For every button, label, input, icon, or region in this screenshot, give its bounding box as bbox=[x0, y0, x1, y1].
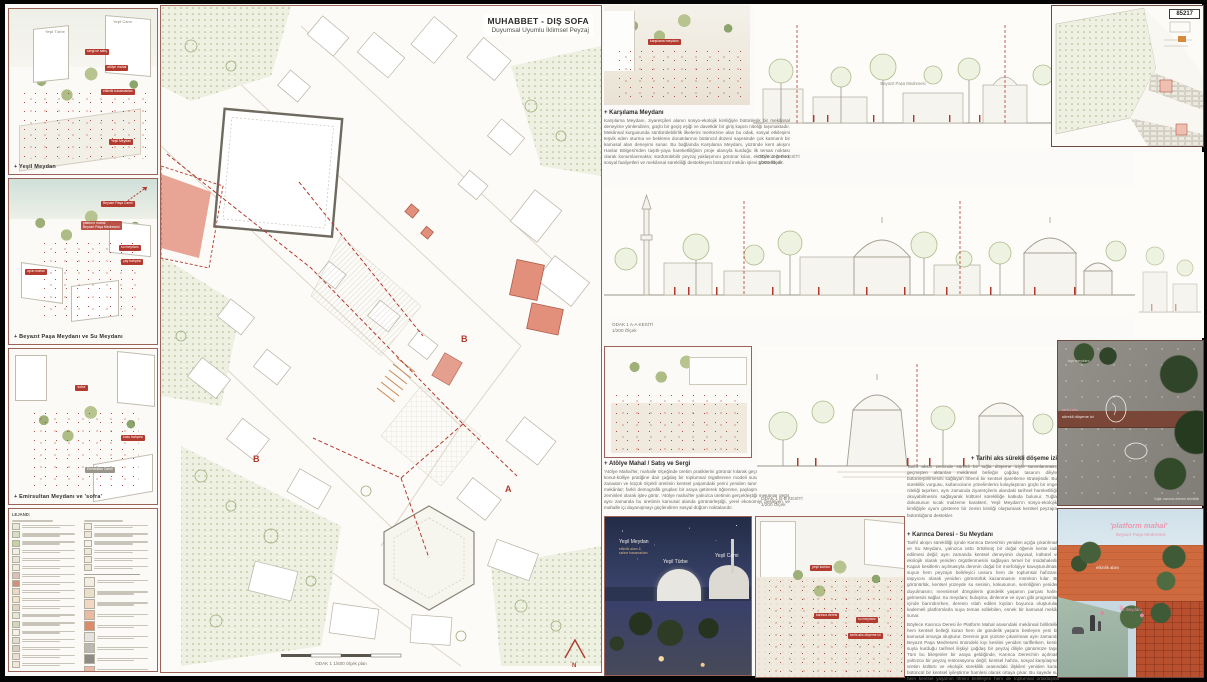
cut-letter-a: A bbox=[505, 484, 512, 494]
text-body: Tarihî akışın sürekliliği içinde Karınca… bbox=[907, 540, 1059, 619]
legend-row bbox=[12, 621, 81, 628]
legend-row bbox=[84, 666, 154, 672]
tag-karsilama: karşılama meydanı bbox=[648, 39, 681, 45]
text-body2: Böylece Karınca Deresi ile Platform Maha… bbox=[907, 622, 1059, 682]
tag-cami: Beyazıt Paşa Camii bbox=[101, 201, 135, 207]
tag-koku-bahcesi: koku bahçesi bbox=[121, 435, 145, 441]
text-body: Tarihi aksın zeminde sürekli bir tuğla d… bbox=[907, 464, 1057, 519]
legend-row bbox=[84, 577, 154, 587]
panel-caption: + Yeşil Meydan bbox=[14, 164, 56, 170]
render-night-yesil-meydan: Yeşil Meydan etkinlik alanı & sahne basa… bbox=[604, 516, 752, 676]
tag-su-meydani: su meydanı bbox=[119, 245, 141, 251]
text-heading: + Karınca Deresi - Su Meydanı bbox=[907, 532, 1059, 538]
render-atolye bbox=[604, 346, 752, 458]
text-karinca-deresi: + Karınca Deresi - Su Meydanı Tarihî akı… bbox=[907, 532, 1059, 678]
pavement-label-4: tuğla: zamana direnen süreklilik bbox=[1154, 497, 1199, 501]
text-heading: + Karşılama Meydanı bbox=[604, 110, 790, 116]
legend-row bbox=[12, 629, 81, 636]
render-street-axon: yeşil koridor karınca deresi su meydanı … bbox=[755, 516, 905, 678]
tag-sofra: 'sofra' bbox=[75, 385, 88, 391]
board-subtitle: Duyumsal Uyumlu İklimsel Peyzaj bbox=[487, 27, 589, 34]
tag-tarihi-aks: tarihi aks döşeme izi bbox=[848, 633, 883, 639]
legend-row bbox=[12, 637, 81, 644]
legend-row bbox=[12, 556, 81, 563]
legend-row bbox=[12, 564, 81, 571]
panel-beyazit-pasa: Beyazıt Paşa Camii platform mahal Beyazı… bbox=[8, 178, 158, 345]
legend-row bbox=[84, 548, 154, 555]
tag-karinca-deresi: karınca deresi bbox=[814, 613, 839, 619]
legend-row bbox=[84, 643, 154, 653]
legend-row bbox=[12, 523, 81, 530]
tree-canopy-2 bbox=[1066, 343, 1126, 369]
chalk-sketches bbox=[1098, 389, 1158, 469]
plan-scale-note: ODAK 1 1/500 ölçek plan bbox=[315, 661, 367, 666]
legend-row bbox=[84, 632, 154, 642]
platform-subtitle: Beyazıt Paşa Medresesi bbox=[1116, 532, 1166, 537]
medrese-note: Beyazıt Paşa Medresesi bbox=[880, 81, 925, 86]
text-heading: + Tarihi aks sürekli döşeme izi bbox=[907, 456, 1057, 462]
person-silhouette bbox=[1090, 615, 1095, 631]
title-block: MUHABBET - DIŞ SOFA Duyumsal Uyumlu İkli… bbox=[483, 14, 593, 36]
board-paper: Yeşil Türbe Yeşil Cami sergi ve satış at… bbox=[5, 4, 1202, 676]
svg-text:N: N bbox=[572, 663, 576, 669]
presentation-board: Yeşil Türbe Yeşil Cami sergi ve satış at… bbox=[0, 0, 1207, 682]
odak1aa-label: ODAK 1 A-A KESİTİ 1/200 Ölçek bbox=[612, 322, 653, 334]
night-ground-trees bbox=[605, 601, 752, 676]
section-odak1-aa bbox=[604, 187, 1136, 319]
platform-label-etkinlik: etkinlik alanı bbox=[1096, 565, 1119, 570]
night-meydan-sub: etkinlik alanı & sahne basamakları bbox=[619, 547, 648, 556]
tag-atolye: atölye mahal bbox=[105, 65, 128, 71]
cami-dome bbox=[709, 565, 749, 599]
photo-pavement: kıyı meydanı tarihi aks sürekli döşeme i… bbox=[1057, 340, 1204, 506]
legend-row bbox=[12, 661, 81, 668]
legend-row bbox=[84, 654, 154, 664]
pavement-label-3: sürekli döşeme izi bbox=[1062, 414, 1094, 419]
legend-row bbox=[12, 588, 81, 595]
pavement-label-1: kıyı meydanı bbox=[1068, 359, 1090, 363]
panel-caption: + Emirsultan Meydanı ve 'sofra' bbox=[14, 494, 102, 500]
legend-row bbox=[12, 540, 81, 547]
tag-platform-mahal: platform mahal Beyazıt Paşa Medresesi bbox=[81, 221, 122, 230]
legend-row bbox=[12, 531, 81, 538]
photo-tree bbox=[1154, 539, 1194, 599]
legend-left-table bbox=[12, 519, 81, 672]
legend-row bbox=[84, 531, 154, 538]
master-plan: B B A ODAK 1 1/500 ölçek plan N MUHABBET… bbox=[160, 5, 602, 673]
legend-row bbox=[84, 523, 154, 530]
elevation-odak2: Beyazıt Paşa Medresesi bbox=[753, 5, 1057, 151]
board-title: MUHABBET - DIŞ SOFA bbox=[487, 16, 589, 26]
photo-tree-2 bbox=[1068, 535, 1112, 579]
panel-yesil-meydan: Yeşil Türbe Yeşil Cami sergi ve satış at… bbox=[8, 8, 158, 175]
night-turbe-label: Yeşil Türbe bbox=[663, 559, 688, 565]
legend-row bbox=[84, 599, 154, 609]
tag-yesil-meydan: Yeşil Meydan bbox=[109, 139, 133, 145]
legend-row bbox=[12, 612, 81, 619]
tag-cay-bahcesi: çay bahçesi bbox=[121, 259, 143, 265]
tag-emirsultan-camii: Emirsultan Camii bbox=[85, 467, 115, 473]
master-plan-drawing: B B A ODAK 1 1/500 ölçek plan N bbox=[161, 6, 601, 672]
legend-row bbox=[84, 610, 154, 620]
cami-label: Yeşil Cami bbox=[113, 19, 132, 24]
legend-row bbox=[12, 604, 81, 611]
tag-su-meydani2: su meydanı bbox=[856, 617, 878, 623]
sheet-id: 85217 bbox=[1169, 9, 1200, 19]
child-silhouette bbox=[1098, 621, 1101, 631]
legend-row bbox=[12, 580, 81, 587]
platform-label-su: su meydanı bbox=[1120, 607, 1142, 612]
legend-panel: LEJAND: bbox=[8, 508, 158, 672]
text-karsilama: + Karşılama Meydanı Karşılama Meydanı, z… bbox=[604, 110, 790, 186]
crowd-dots bbox=[29, 409, 139, 489]
crowd-dots bbox=[19, 89, 149, 159]
legend-row bbox=[84, 556, 154, 563]
elevation-right-strip bbox=[1135, 152, 1204, 338]
render-karsilama: karşılama meydanı bbox=[604, 5, 750, 105]
legend-row bbox=[12, 596, 81, 603]
dog-silhouette bbox=[1072, 627, 1084, 634]
legend-row bbox=[12, 645, 81, 652]
text-body: Karşılama Meydanı, ziyaretçileri alanın … bbox=[604, 118, 790, 167]
pavement-label-2: tarihi aks bbox=[1062, 407, 1078, 412]
night-meydan-label: Yeşil Meydan bbox=[619, 539, 649, 545]
detail-plan-topright: 85217 bbox=[1051, 5, 1204, 147]
turbe-label: Yeşil Türbe bbox=[45, 29, 65, 34]
legend-title: LEJAND: bbox=[12, 512, 154, 517]
legend-row bbox=[84, 588, 154, 598]
cut-letter-b2: B bbox=[253, 454, 260, 464]
panel-emirsultan: 'sofra' koku bahçesi Emirsultan Camii + … bbox=[8, 348, 158, 505]
photo-platform-mahal: 'platform mahal' Beyazıt Paşa Medresesi … bbox=[1057, 508, 1204, 678]
legend-row bbox=[84, 564, 154, 571]
legend-row bbox=[84, 540, 154, 547]
legend-row bbox=[12, 653, 81, 660]
legend-row bbox=[12, 548, 81, 555]
panel-caption: + Beyazıt Paşa Meydanı ve Su Meydanı bbox=[14, 334, 123, 340]
tag-basamak: etkinlik basamakları bbox=[101, 89, 135, 95]
tag-sergi: sergi ve satış bbox=[85, 49, 109, 55]
odak1bb-label: ODAK 1 B-B KESİTİ 1/200 Ölçek bbox=[761, 496, 803, 508]
legend-right-table bbox=[84, 519, 154, 672]
tag-yesil-koridor: yeşil koridor bbox=[810, 565, 832, 571]
platform-title: 'platform mahal' bbox=[1110, 521, 1167, 530]
crowd-dots bbox=[39, 239, 139, 319]
tag-oyun-mahal: oyun mahal bbox=[25, 269, 47, 275]
legend-row bbox=[12, 572, 81, 579]
legend-row bbox=[84, 621, 154, 631]
planting-band bbox=[1092, 593, 1178, 633]
cut-letter-b: B bbox=[461, 334, 468, 344]
night-cami-label: Yeşil Cami bbox=[715, 553, 738, 559]
text-tarihi-aks: + Tarihi aks sürekli döşeme izi Tarihi a… bbox=[907, 456, 1057, 516]
